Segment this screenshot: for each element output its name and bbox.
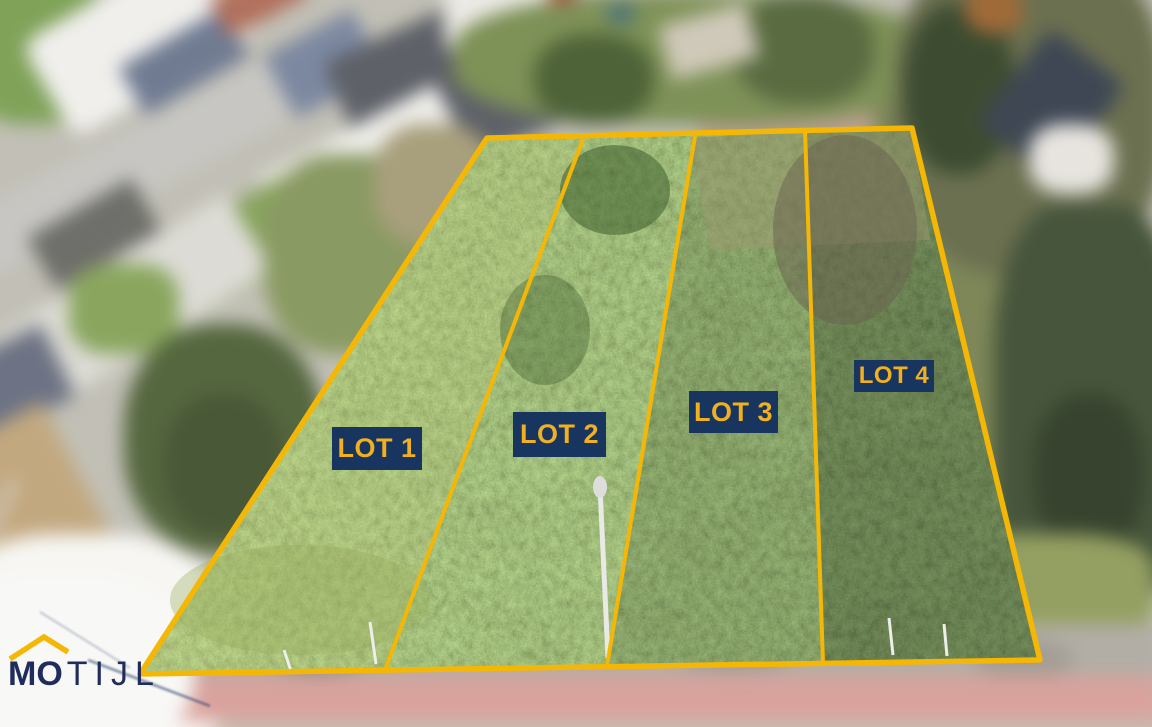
lamppost-head — [593, 476, 607, 498]
lot-2-label: LOT 2 — [513, 412, 606, 457]
motijl-logo: MOTIJL — [7, 634, 157, 700]
aerial-lot-photo: LOT 1 LOT 2 LOT 3 LOT 4 MOTIJL — [0, 0, 1152, 727]
bare-tree — [773, 135, 917, 325]
logo-text: MOTIJL — [8, 657, 161, 691]
logo-text-secondary: TIJL — [67, 655, 161, 693]
lot-1-label: LOT 1 — [332, 427, 422, 470]
lot-4-label: LOT 4 — [854, 360, 934, 392]
logo-text-primary: MO — [8, 655, 63, 693]
parcel-overlay — [0, 0, 1152, 727]
light-grass — [170, 545, 430, 655]
lot-3-label: LOT 3 — [689, 391, 778, 433]
